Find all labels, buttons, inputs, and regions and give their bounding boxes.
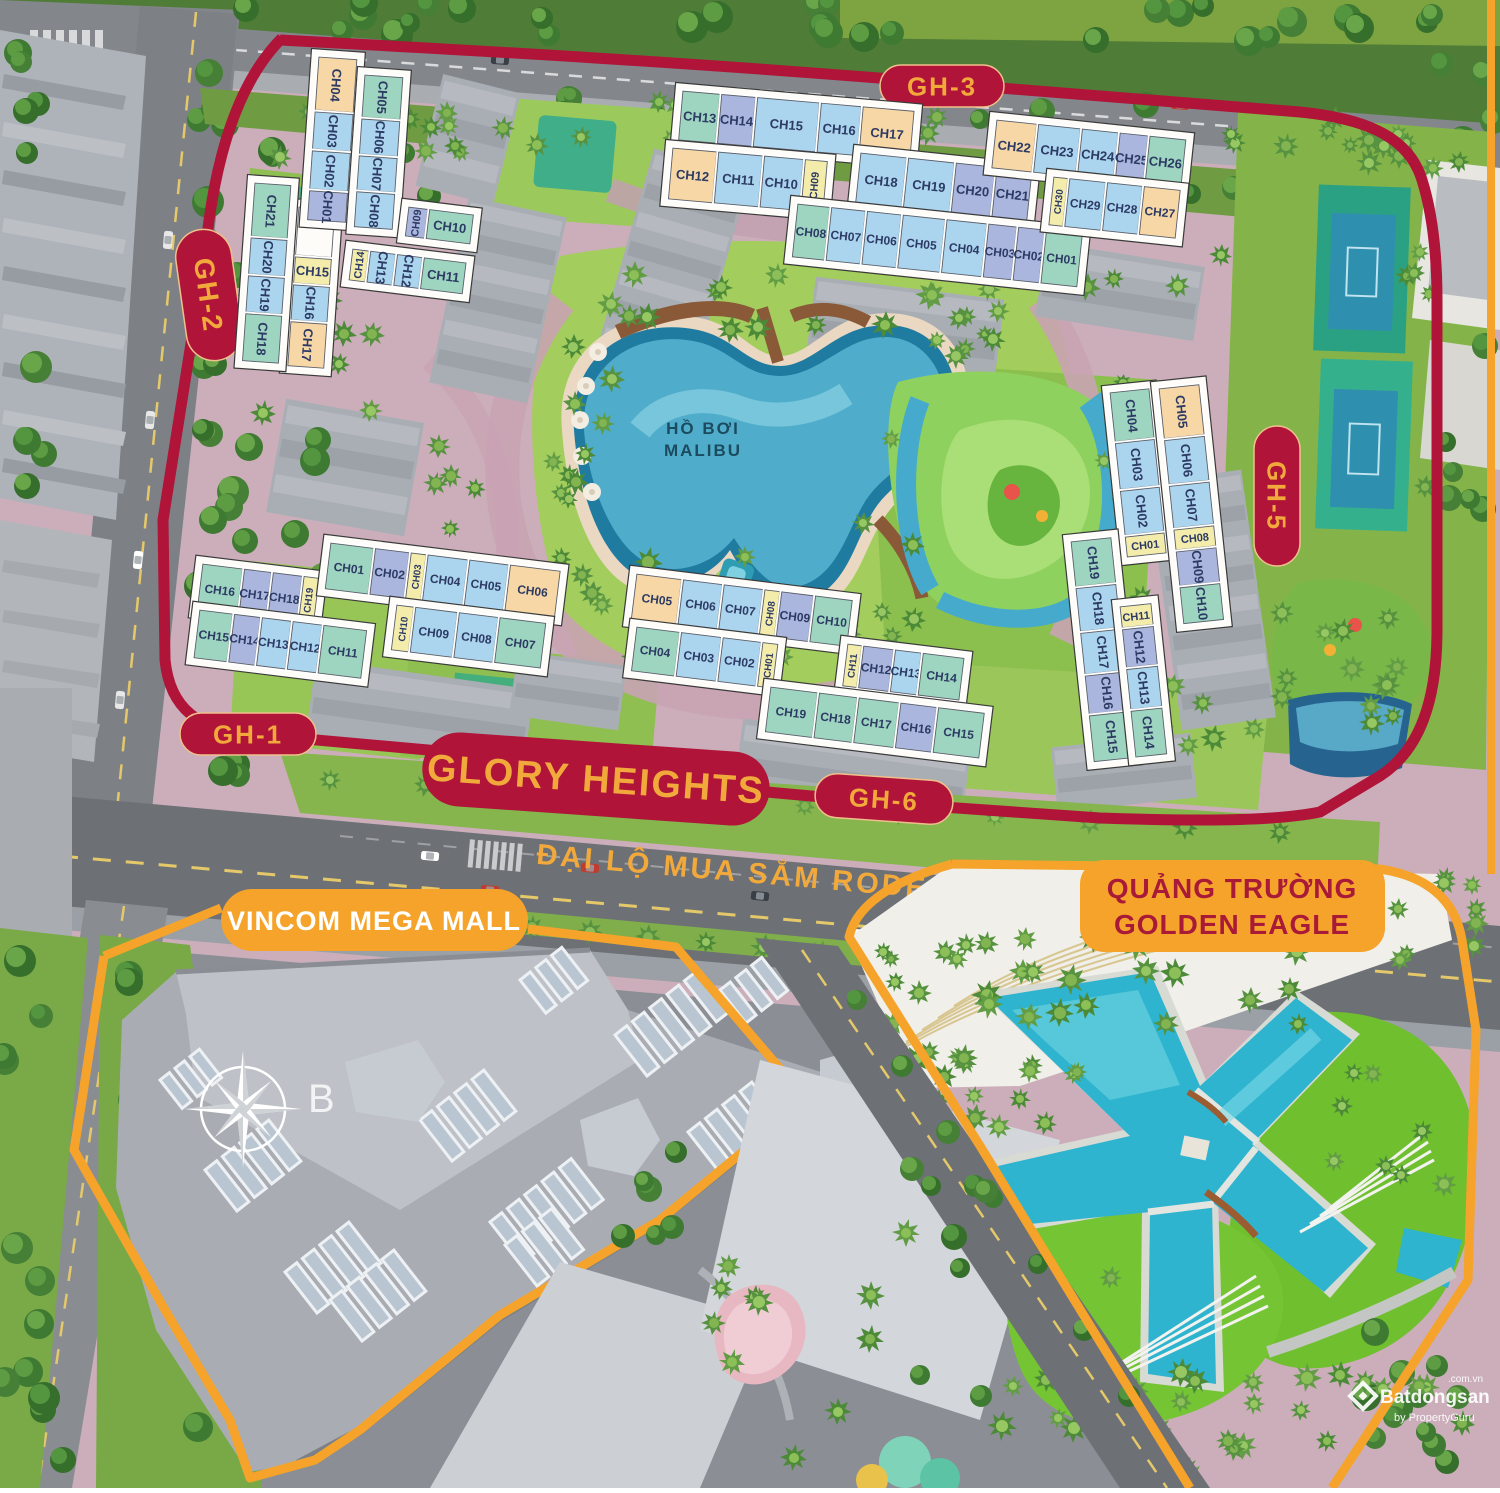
svg-text:CH14: CH14 bbox=[719, 111, 754, 129]
svg-text:CH20: CH20 bbox=[259, 240, 276, 274]
svg-text:CH19: CH19 bbox=[256, 278, 273, 312]
svg-text:CH11: CH11 bbox=[722, 171, 756, 189]
svg-text:GOLDEN EAGLE: GOLDEN EAGLE bbox=[1114, 909, 1350, 940]
svg-text:B: B bbox=[308, 1077, 335, 1121]
svg-text:MALIBU: MALIBU bbox=[664, 441, 742, 460]
svg-text:CH03: CH03 bbox=[324, 114, 341, 148]
svg-text:QUẢNG TRƯỜNG: QUẢNG TRƯỜNG bbox=[1107, 872, 1357, 904]
svg-text:CH01: CH01 bbox=[319, 190, 336, 224]
svg-text:CH04: CH04 bbox=[327, 68, 344, 103]
svg-text:CH17: CH17 bbox=[870, 125, 904, 143]
svg-text:CH15: CH15 bbox=[295, 263, 329, 280]
svg-text:CH12: CH12 bbox=[675, 166, 709, 184]
svg-text:CH08: CH08 bbox=[366, 194, 383, 228]
svg-text:CH02: CH02 bbox=[321, 154, 338, 188]
svg-text:CH17: CH17 bbox=[299, 328, 316, 362]
svg-text:CH16: CH16 bbox=[822, 120, 856, 138]
svg-text:CH05: CH05 bbox=[374, 80, 391, 114]
svg-text:CH06: CH06 bbox=[371, 120, 388, 154]
svg-text:CH09: CH09 bbox=[808, 171, 822, 199]
svg-text:CH21: CH21 bbox=[262, 194, 279, 228]
svg-text:by PropertyGuru: by PropertyGuru bbox=[1394, 1412, 1475, 1424]
svg-text:GH-1: GH-1 bbox=[213, 719, 283, 749]
svg-text:CH18: CH18 bbox=[253, 322, 270, 356]
svg-text:GH-5: GH-5 bbox=[1262, 461, 1292, 531]
svg-text:CH10: CH10 bbox=[764, 174, 798, 192]
svg-text:CH15: CH15 bbox=[769, 116, 803, 134]
svg-text:HỒ BƠI: HỒ BƠI bbox=[666, 419, 740, 438]
svg-text:VINCOM MEGA MALL: VINCOM MEGA MALL bbox=[227, 906, 521, 936]
svg-text:.com.vn: .com.vn bbox=[1448, 1374, 1483, 1385]
svg-text:GH-6: GH-6 bbox=[848, 782, 920, 817]
svg-text:CH16: CH16 bbox=[302, 286, 319, 320]
svg-text:CH13: CH13 bbox=[682, 108, 716, 126]
svg-text:GH-3: GH-3 bbox=[907, 71, 977, 101]
svg-text:Batdongsan: Batdongsan bbox=[1380, 1387, 1490, 1408]
svg-text:CH07: CH07 bbox=[368, 157, 385, 191]
